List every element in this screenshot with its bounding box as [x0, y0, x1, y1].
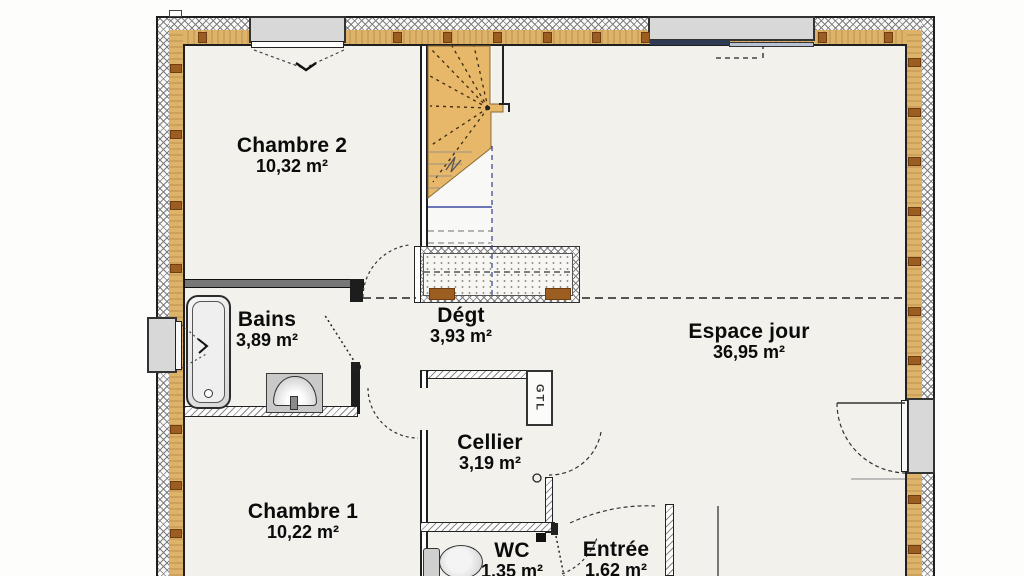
- bathtub: [186, 295, 231, 409]
- wall-left-hatch: [158, 18, 169, 576]
- wall-bains-door-jamb-top: [350, 279, 363, 302]
- wall-bains-top: [184, 279, 364, 288]
- room-name: Chambre 1: [248, 500, 358, 523]
- room-area: 3,19 m²: [457, 454, 523, 474]
- room-area: 10,32 m²: [237, 157, 347, 177]
- wall-stud: [170, 264, 182, 273]
- wall-right-outer-line: [933, 16, 935, 576]
- label-degt: Dégt 3,93 m²: [430, 304, 492, 347]
- sink-faucet: [290, 396, 298, 410]
- wall-stud: [592, 32, 601, 43]
- door-right-leafguide: [901, 400, 908, 472]
- floor-plan-canvas: GTL: [0, 0, 1024, 576]
- wall-stud: [908, 257, 921, 266]
- wall-stud: [170, 529, 182, 538]
- wall-stud: [641, 32, 650, 43]
- understair-door-leaf: [414, 246, 421, 303]
- wall-stud: [493, 32, 502, 43]
- label-bains: Bains 3,89 m²: [236, 308, 298, 351]
- wall-stud: [170, 481, 182, 490]
- wall-stud: [170, 201, 182, 210]
- understair-post-left: [429, 288, 455, 300]
- wall-left-inner-line: [183, 44, 185, 576]
- bathtub-drain: [204, 389, 213, 398]
- wall-stud: [170, 425, 182, 434]
- window-espace-jour: [648, 16, 815, 41]
- wall-stud: [908, 58, 921, 67]
- room-area: 1,35 m²: [481, 562, 543, 576]
- wall-stud: [884, 32, 893, 43]
- wall-stud: [393, 32, 402, 43]
- wall-cellier-top: [420, 370, 530, 379]
- wall-stud: [908, 307, 921, 316]
- wall-wc-top: [420, 522, 555, 532]
- label-cellier: Cellier 3,19 m²: [457, 431, 523, 474]
- label-chambre1: Chambre 1 10,22 m²: [248, 500, 358, 543]
- door-right-frame: [907, 398, 935, 474]
- wall-stud: [198, 32, 207, 43]
- wall-stud: [818, 32, 827, 43]
- window-bains: [147, 317, 177, 373]
- wall-right-hatch: [922, 18, 933, 576]
- wall-stud: [543, 32, 552, 43]
- room-area: 1,62 m²: [583, 561, 650, 576]
- toilet-bowl: [439, 545, 483, 576]
- wall-stud: [908, 207, 921, 216]
- room-name: Espace jour: [688, 320, 809, 343]
- window-chambre2: [249, 16, 346, 43]
- gtl-duct: GTL: [526, 370, 553, 426]
- wall-stud: [908, 356, 921, 365]
- room-name: Dégt: [430, 304, 492, 327]
- label-espace-jour: Espace jour 36,95 m²: [688, 320, 809, 363]
- gtl-label: GTL: [534, 384, 546, 412]
- room-area: 10,22 m²: [248, 523, 358, 543]
- wall-stud: [908, 157, 921, 166]
- room-name: Chambre 2: [237, 134, 347, 157]
- label-chambre2: Chambre 2 10,32 m²: [237, 134, 347, 177]
- vent-mark: [169, 10, 182, 17]
- label-wc: WC 1,35 m²: [481, 539, 543, 576]
- label-entree: Entrée 1,62 m²: [583, 538, 650, 576]
- understair-post-right: [545, 288, 571, 300]
- window-espace-jour-pane-right: [729, 42, 814, 47]
- wall-stud: [170, 64, 182, 73]
- window-bains-pane: [175, 321, 182, 370]
- room-name: WC: [481, 539, 543, 562]
- wall-stud: [908, 495, 921, 504]
- window-chambre2-sill: [251, 41, 344, 48]
- wall-stairwell: [420, 46, 428, 247]
- wall-stud: [908, 545, 921, 554]
- room-area: 3,89 m²: [236, 331, 298, 351]
- room-name: Bains: [236, 308, 298, 331]
- wall-cellier-left-jamb: [420, 371, 428, 388]
- window-espace-jour-pane-left: [650, 40, 730, 45]
- toilet-tank: [423, 548, 440, 576]
- wall-wc-right-jamb: [551, 523, 558, 535]
- room-name: Cellier: [457, 431, 523, 454]
- wall-stud: [170, 130, 182, 139]
- wall-left-wood: [169, 30, 183, 576]
- room-area: 3,93 m²: [430, 327, 492, 347]
- wall-stud: [908, 108, 921, 117]
- wall-entree-right: [665, 504, 674, 576]
- wall-stud: [443, 32, 452, 43]
- room-area: 36,95 m²: [688, 343, 809, 363]
- bathtub-inner: [192, 301, 225, 403]
- entree-sejour-line: [717, 506, 719, 576]
- room-name: Entrée: [583, 538, 650, 561]
